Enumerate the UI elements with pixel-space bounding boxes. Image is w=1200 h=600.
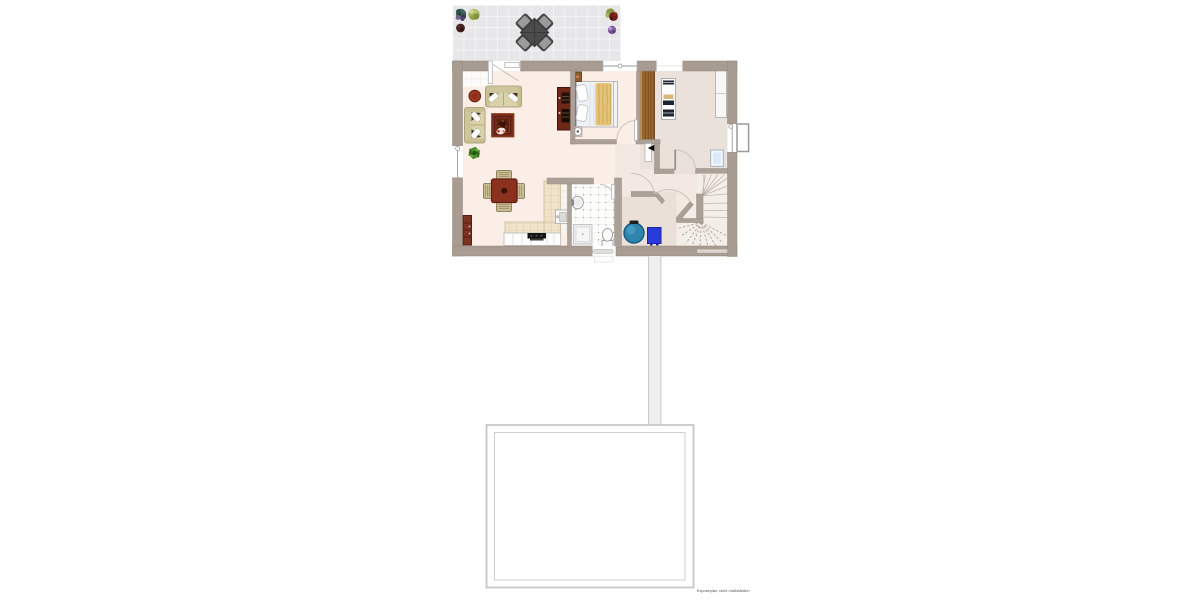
svg-text:Exposéplan, nicht maßstäblich: Exposéplan, nicht maßstäblich — [697, 588, 750, 593]
